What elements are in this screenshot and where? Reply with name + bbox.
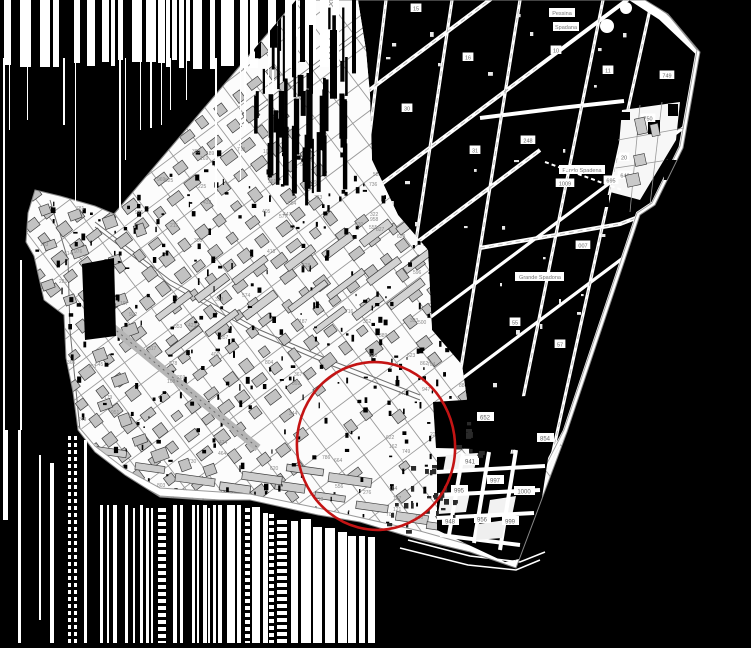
- svg-text:225: 225: [198, 184, 207, 190]
- svg-text:664: 664: [334, 458, 343, 464]
- svg-text:15: 15: [413, 7, 419, 13]
- svg-text:854: 854: [540, 437, 551, 443]
- svg-text:999: 999: [505, 520, 516, 526]
- svg-text:11: 11: [605, 69, 611, 75]
- svg-text:189: 189: [206, 151, 215, 157]
- svg-text:947: 947: [422, 387, 431, 393]
- svg-text:248: 248: [523, 139, 532, 145]
- svg-text:622: 622: [386, 435, 395, 441]
- svg-text:976: 976: [74, 249, 83, 255]
- svg-text:969: 969: [157, 177, 166, 183]
- svg-text:30: 30: [404, 107, 410, 113]
- svg-text:620: 620: [397, 234, 406, 240]
- svg-text:783: 783: [314, 195, 323, 201]
- svg-text:951: 951: [111, 410, 120, 416]
- svg-text:948: 948: [445, 520, 456, 526]
- svg-text:183: 183: [40, 242, 49, 248]
- svg-text:620: 620: [270, 466, 279, 472]
- svg-text:825: 825: [165, 178, 174, 184]
- svg-text:596: 596: [413, 270, 422, 276]
- svg-text:956: 956: [477, 518, 488, 524]
- svg-text:405: 405: [262, 209, 271, 215]
- svg-text:545: 545: [95, 362, 104, 368]
- svg-text:853: 853: [174, 324, 183, 330]
- svg-text:892: 892: [292, 381, 301, 387]
- svg-text:269: 269: [177, 375, 186, 381]
- svg-text:57: 57: [557, 343, 563, 349]
- svg-text:249: 249: [78, 417, 87, 423]
- svg-text:16: 16: [465, 56, 471, 62]
- svg-text:108: 108: [167, 379, 176, 385]
- svg-text:827: 827: [376, 227, 385, 233]
- svg-text:007: 007: [578, 244, 587, 250]
- svg-text:830: 830: [369, 353, 378, 359]
- svg-text:736: 736: [369, 182, 378, 188]
- svg-text:424: 424: [219, 440, 228, 446]
- svg-text:361: 361: [268, 179, 277, 185]
- svg-text:716: 716: [345, 309, 354, 315]
- svg-text:657: 657: [220, 335, 229, 341]
- svg-text:418: 418: [267, 249, 276, 255]
- svg-text:322: 322: [370, 212, 379, 218]
- svg-text:20: 20: [621, 156, 627, 162]
- svg-text:107: 107: [120, 301, 129, 307]
- svg-text:401: 401: [211, 352, 220, 358]
- svg-text:749: 749: [402, 449, 411, 455]
- svg-text:556: 556: [335, 484, 344, 490]
- svg-text:623: 623: [407, 353, 416, 359]
- svg-text:749: 749: [662, 74, 671, 80]
- svg-text:187: 187: [299, 319, 308, 325]
- svg-text:10: 10: [553, 49, 559, 55]
- svg-text:941: 941: [465, 460, 476, 466]
- svg-text:344: 344: [289, 411, 298, 417]
- svg-text:276: 276: [363, 490, 372, 496]
- svg-text:804: 804: [265, 360, 274, 366]
- svg-text:786: 786: [322, 455, 331, 461]
- svg-text:652: 652: [480, 416, 491, 422]
- svg-text:768: 768: [237, 147, 246, 153]
- svg-text:Grande Spadona: Grande Spadona: [519, 275, 562, 281]
- svg-text:971: 971: [135, 210, 144, 216]
- svg-text:215: 215: [170, 223, 179, 229]
- svg-text:278: 278: [169, 361, 178, 367]
- svg-text:162: 162: [389, 444, 398, 450]
- svg-text:423: 423: [188, 323, 197, 329]
- svg-text:164: 164: [389, 486, 398, 492]
- svg-text:300: 300: [194, 238, 203, 244]
- svg-text:500: 500: [418, 320, 427, 326]
- svg-text:730: 730: [188, 459, 197, 465]
- svg-text:Spadana: Spadana: [555, 25, 578, 31]
- svg-text:1009: 1009: [559, 182, 571, 188]
- svg-text:574: 574: [242, 293, 251, 299]
- svg-text:554: 554: [288, 201, 297, 207]
- svg-text:389: 389: [379, 333, 388, 339]
- svg-text:383: 383: [192, 149, 201, 155]
- svg-text:630: 630: [355, 222, 364, 228]
- svg-text:177: 177: [393, 496, 402, 502]
- svg-text:281: 281: [59, 279, 68, 285]
- svg-text:352: 352: [363, 319, 372, 325]
- svg-text:179: 179: [104, 395, 113, 401]
- svg-text:803: 803: [157, 483, 166, 489]
- svg-text:31: 31: [472, 149, 478, 155]
- svg-text:365: 365: [67, 360, 76, 366]
- svg-text:464: 464: [218, 451, 227, 457]
- svg-text:995: 995: [454, 489, 465, 495]
- svg-text:317: 317: [148, 346, 157, 352]
- svg-text:922: 922: [129, 312, 138, 318]
- svg-text:1000: 1000: [517, 490, 531, 496]
- svg-text:997: 997: [490, 479, 501, 485]
- svg-text:Pessina: Pessina: [552, 11, 573, 17]
- svg-text:367: 367: [294, 372, 303, 378]
- svg-text:447: 447: [283, 212, 292, 218]
- svg-text:393: 393: [215, 297, 224, 303]
- svg-text:55: 55: [512, 321, 518, 327]
- svg-text:243: 243: [398, 391, 407, 397]
- svg-text:614: 614: [64, 251, 73, 257]
- svg-text:Fondo Spadena: Fondo Spadena: [562, 168, 602, 174]
- svg-text:781: 781: [76, 206, 85, 212]
- svg-text:432: 432: [203, 200, 212, 206]
- svg-text:628: 628: [302, 263, 311, 269]
- svg-text:704: 704: [427, 362, 436, 368]
- svg-text:695: 695: [606, 179, 615, 185]
